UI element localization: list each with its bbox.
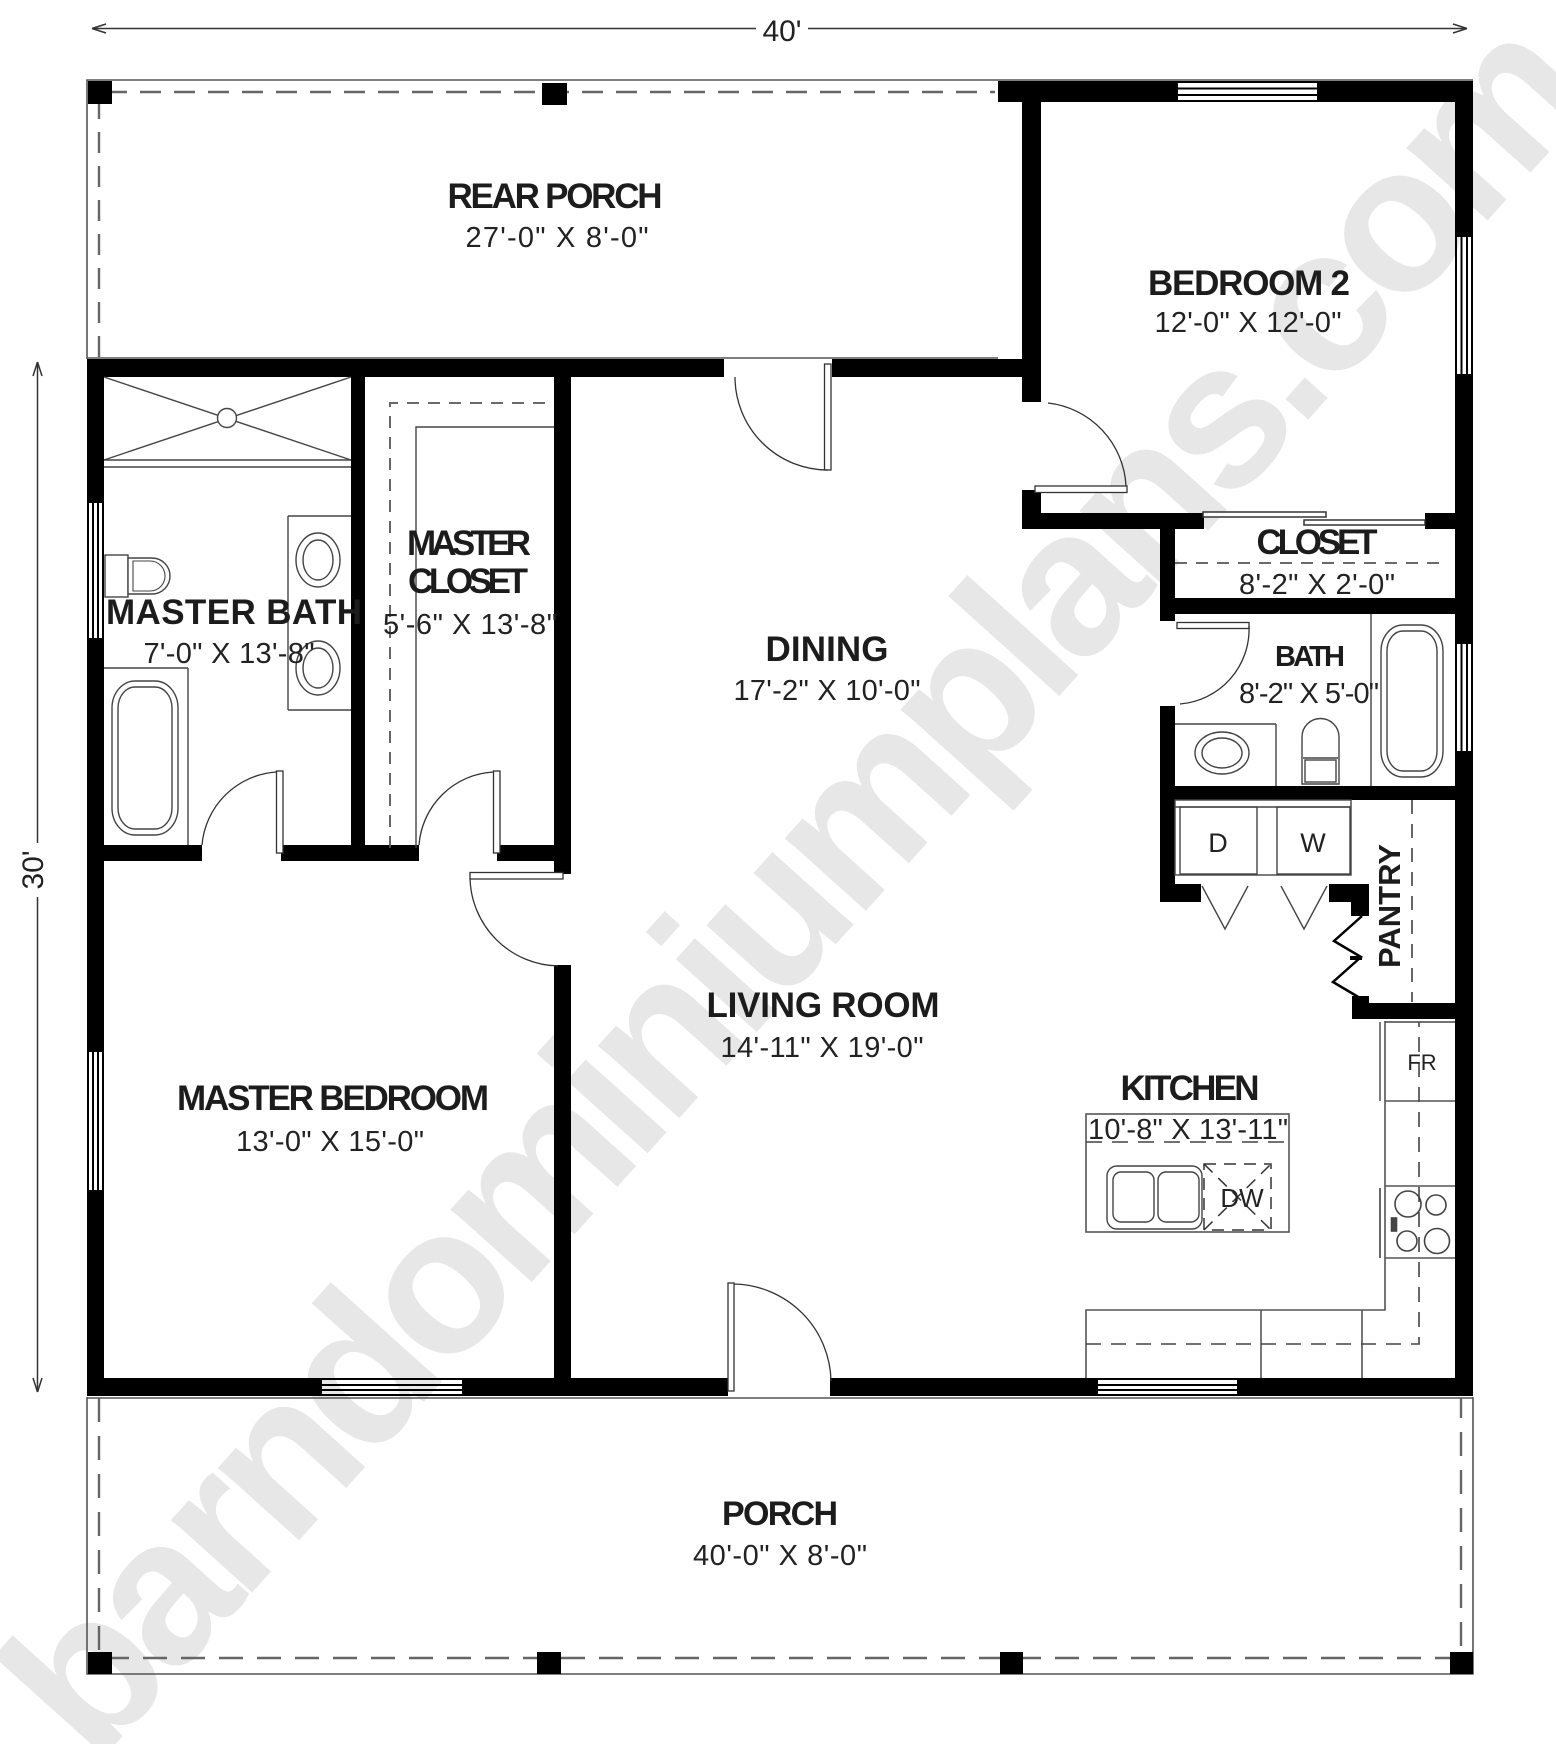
svg-text:W: W — [1300, 828, 1326, 858]
svg-text:5'-6" X 13'-8": 5'-6" X 13'-8" — [383, 609, 557, 641]
svg-text:13'-0" X 15'-0": 13'-0" X 15'-0" — [236, 1126, 424, 1158]
svg-text:MASTER: MASTER — [407, 524, 531, 563]
svg-text:27'-0" X 8'-0": 27'-0" X 8'-0" — [466, 222, 649, 254]
svg-text:MASTER BATH: MASTER BATH — [106, 593, 362, 632]
svg-text:8'-2" X 5'-0": 8'-2" X 5'-0" — [1239, 678, 1379, 710]
svg-text:40'-0" X 8'-0": 40'-0" X 8'-0" — [693, 1540, 867, 1572]
svg-text:PORCH: PORCH — [722, 1495, 838, 1533]
svg-text:BEDROOM 2: BEDROOM 2 — [1148, 264, 1350, 303]
svg-text:7'-0" X 13'-8": 7'-0" X 13'-8" — [144, 638, 315, 670]
svg-text:DW: DW — [1220, 1183, 1264, 1213]
svg-text:17'-2" X 10'-0": 17'-2" X 10'-0" — [734, 675, 921, 707]
svg-text:30': 30' — [17, 850, 50, 889]
svg-text:D: D — [1208, 828, 1228, 858]
svg-text:BATH: BATH — [1275, 641, 1345, 673]
svg-text:8'-2" X 2'-0": 8'-2" X 2'-0" — [1239, 569, 1395, 601]
svg-text:FR: FR — [1407, 1050, 1436, 1075]
svg-text:14'-11" X 19'-0": 14'-11" X 19'-0" — [721, 1032, 924, 1064]
svg-text:40': 40' — [762, 15, 801, 48]
svg-text:KITCHEN: KITCHEN — [1121, 1069, 1260, 1108]
svg-text:DINING: DINING — [766, 630, 889, 669]
svg-text:10'-8" X 13'-11": 10'-8" X 13'-11" — [1088, 1114, 1288, 1146]
svg-text:REAR PORCH: REAR PORCH — [448, 177, 663, 216]
svg-text:MASTER BEDROOM: MASTER BEDROOM — [177, 1079, 489, 1118]
svg-text:12'-0" X 12'-0": 12'-0" X 12'-0" — [1155, 307, 1342, 339]
svg-text:CLOSET: CLOSET — [408, 562, 528, 601]
svg-text:CLOSET: CLOSET — [1257, 523, 1378, 562]
svg-text:LIVING ROOM: LIVING ROOM — [707, 986, 940, 1025]
svg-text:PANTRY: PANTRY — [1372, 844, 1407, 968]
